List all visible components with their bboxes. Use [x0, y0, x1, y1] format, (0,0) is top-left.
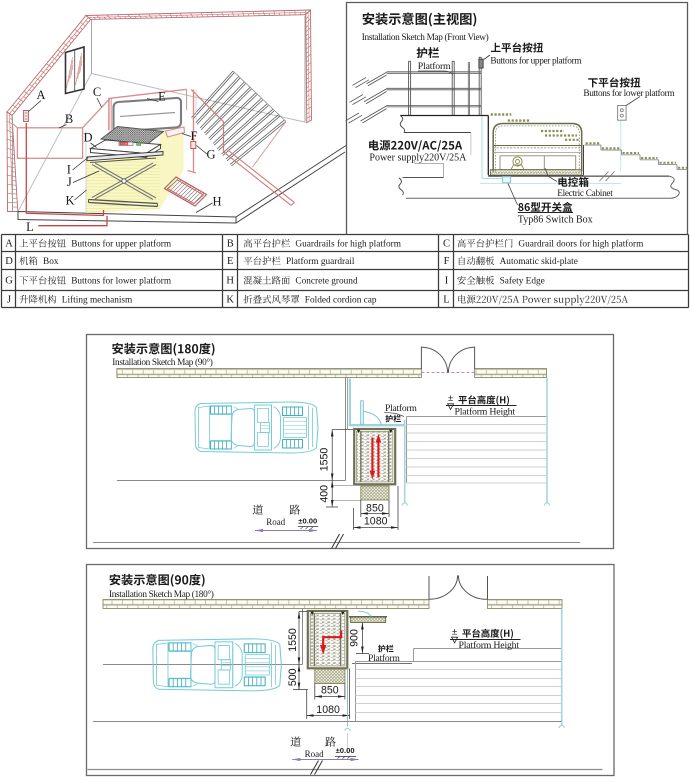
svg-text:850: 850 — [366, 502, 384, 514]
svg-text:H: H — [212, 195, 221, 209]
svg-text:G: G — [5, 275, 13, 286]
svg-text:Buttons for upper platform: Buttons for upper platform — [490, 55, 582, 66]
svg-text:D: D — [83, 131, 92, 145]
svg-text:850: 850 — [321, 685, 339, 697]
svg-text:Platform: Platform — [385, 403, 417, 414]
svg-text:Guardrails for high platform: Guardrails for high platform — [295, 238, 401, 249]
svg-text:Buttons for lower platform: Buttons for lower platform — [71, 275, 172, 286]
svg-text:J: J — [67, 175, 72, 189]
svg-text:E: E — [158, 90, 166, 104]
svg-text:Platform: Platform — [368, 653, 400, 664]
svg-text:1550: 1550 — [287, 628, 299, 652]
svg-text:Installation Sketch Map (Front: Installation Sketch Map (Front View) — [362, 32, 489, 43]
svg-text:Power supply220V/25A: Power supply220V/25A — [369, 152, 467, 163]
svg-text:K: K — [226, 294, 234, 305]
svg-text:400: 400 — [319, 485, 331, 503]
svg-text:Electric Cabinet: Electric Cabinet — [557, 189, 613, 199]
svg-text:1550: 1550 — [319, 448, 331, 472]
svg-text:F: F — [444, 256, 450, 267]
svg-text:Platform guardrail: Platform guardrail — [286, 256, 355, 267]
svg-text:L: L — [26, 220, 34, 234]
svg-text:±: ± — [452, 626, 457, 637]
svg-text:B: B — [65, 112, 73, 126]
svg-text:Lifting mechanism: Lifting mechanism — [62, 294, 133, 305]
svg-text:G: G — [206, 148, 215, 162]
svg-text:Road: Road — [305, 749, 324, 759]
svg-text:E: E — [227, 256, 233, 267]
svg-text:Buttons for upper platform: Buttons for upper platform — [71, 238, 172, 249]
svg-text:I: I — [445, 275, 449, 286]
svg-text:Platform: Platform — [418, 61, 451, 72]
svg-text:Platform Height: Platform Height — [459, 640, 520, 651]
svg-text:K: K — [65, 194, 74, 208]
svg-text:Buttons for lower platform: Buttons for lower platform — [583, 88, 675, 99]
svg-text:Concrete ground: Concrete ground — [295, 276, 358, 286]
svg-text:C: C — [93, 85, 101, 99]
svg-text:Guardrail doors for high platf: Guardrail doors for high platform — [518, 238, 644, 249]
svg-text:Box: Box — [43, 257, 59, 267]
svg-text:F: F — [191, 129, 198, 143]
svg-text:C: C — [443, 238, 450, 249]
svg-text:Automatic skid-plate: Automatic skid-plate — [500, 257, 578, 267]
svg-text:Road: Road — [266, 517, 285, 527]
svg-text:1080: 1080 — [316, 704, 340, 716]
svg-text:Folded cordion cap: Folded cordion cap — [305, 295, 377, 305]
svg-text:500: 500 — [287, 668, 299, 686]
svg-text:A: A — [36, 88, 45, 102]
svg-text:B: B — [227, 238, 234, 249]
svg-text:±: ± — [448, 393, 453, 404]
svg-text:±0.00: ±0.00 — [336, 746, 355, 755]
svg-text:L: L — [443, 294, 449, 305]
svg-text:1080: 1080 — [364, 516, 388, 528]
svg-text:Safety Edge: Safety Edge — [500, 275, 545, 286]
svg-text:H: H — [226, 275, 234, 286]
svg-text:Installation Sketch Map (90°): Installation Sketch Map (90°) — [112, 357, 212, 368]
svg-text:Typ86 Switch Box: Typ86 Switch Box — [518, 214, 593, 225]
svg-text:±0.00: ±0.00 — [298, 517, 317, 526]
svg-text:J: J — [7, 294, 11, 305]
svg-text:900: 900 — [349, 629, 361, 647]
svg-text:Platform Height: Platform Height — [455, 407, 516, 418]
svg-text:A: A — [5, 238, 13, 249]
svg-text:D: D — [5, 256, 13, 267]
svg-text:Installation Sketch Map (180°): Installation Sketch Map (180°) — [109, 589, 214, 600]
